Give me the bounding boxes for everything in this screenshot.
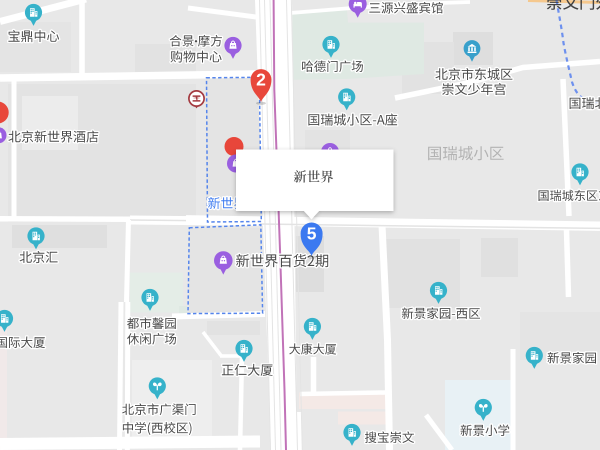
svg-text:2: 2 [256, 70, 266, 90]
svg-text:5: 5 [307, 224, 317, 244]
